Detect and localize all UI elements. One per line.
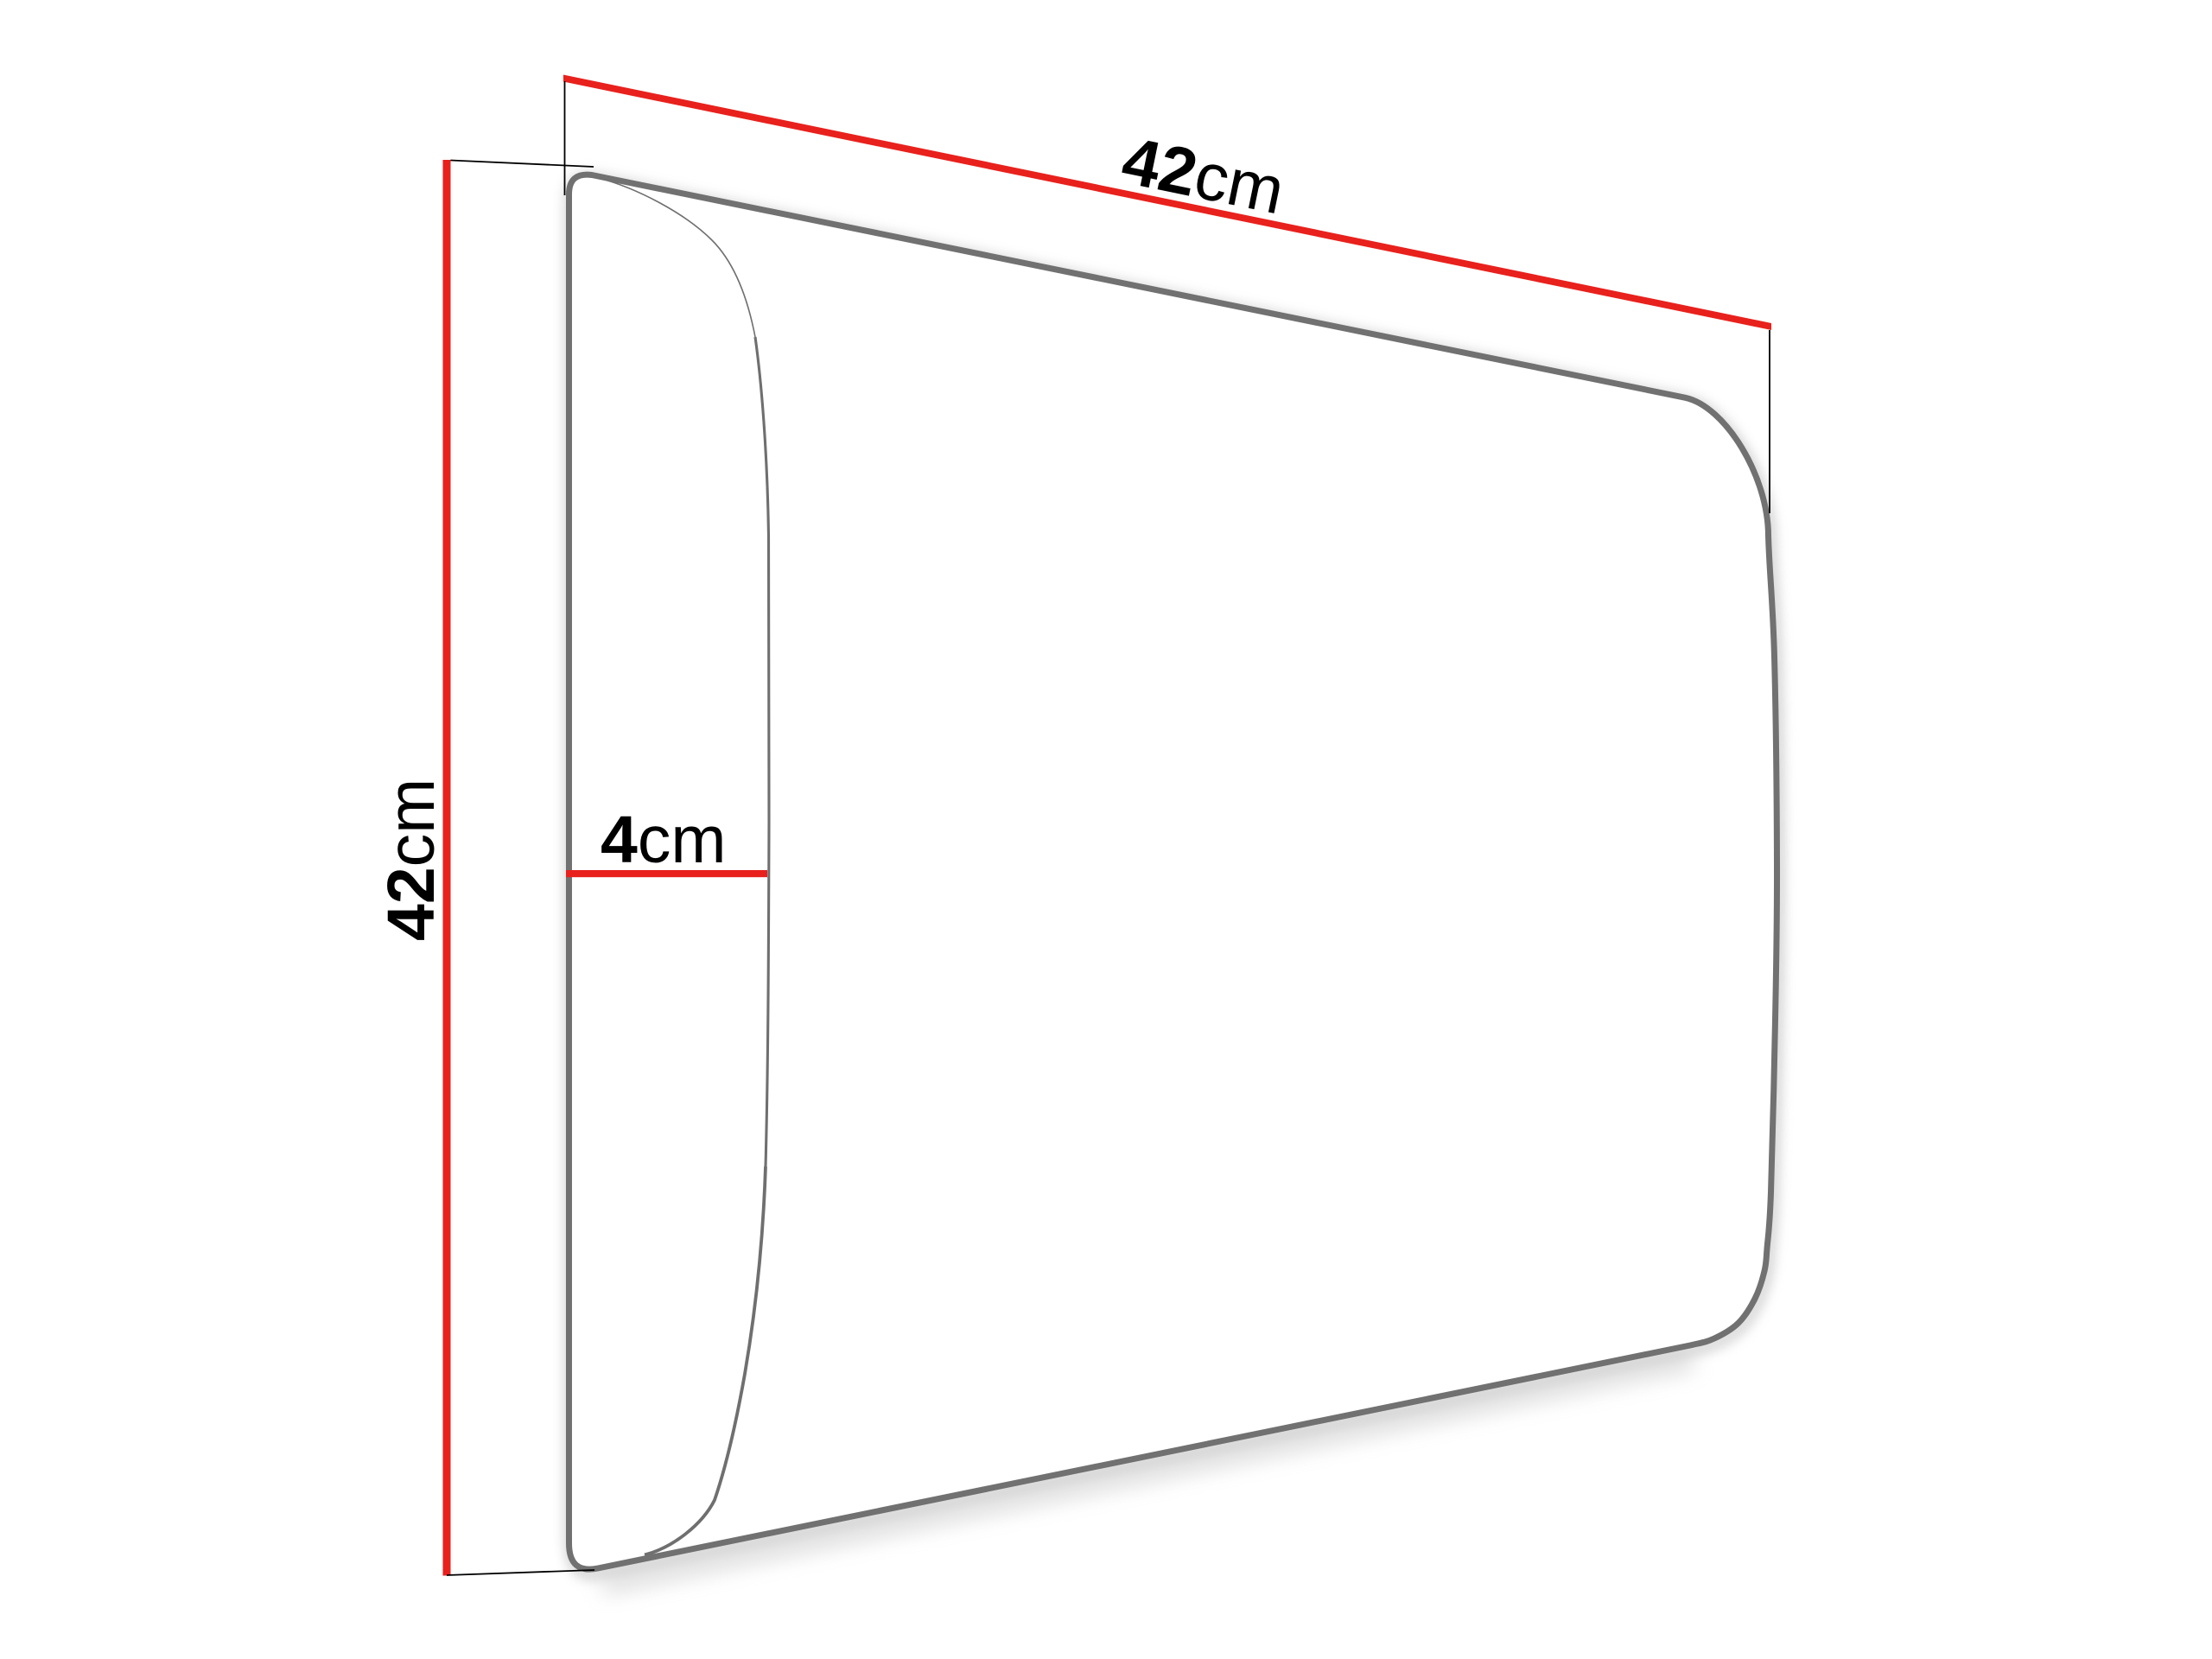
svg-text:4cm: 4cm [601,803,726,877]
svg-text:42cm: 42cm [1116,123,1291,228]
svg-text:42cm: 42cm [374,779,448,941]
